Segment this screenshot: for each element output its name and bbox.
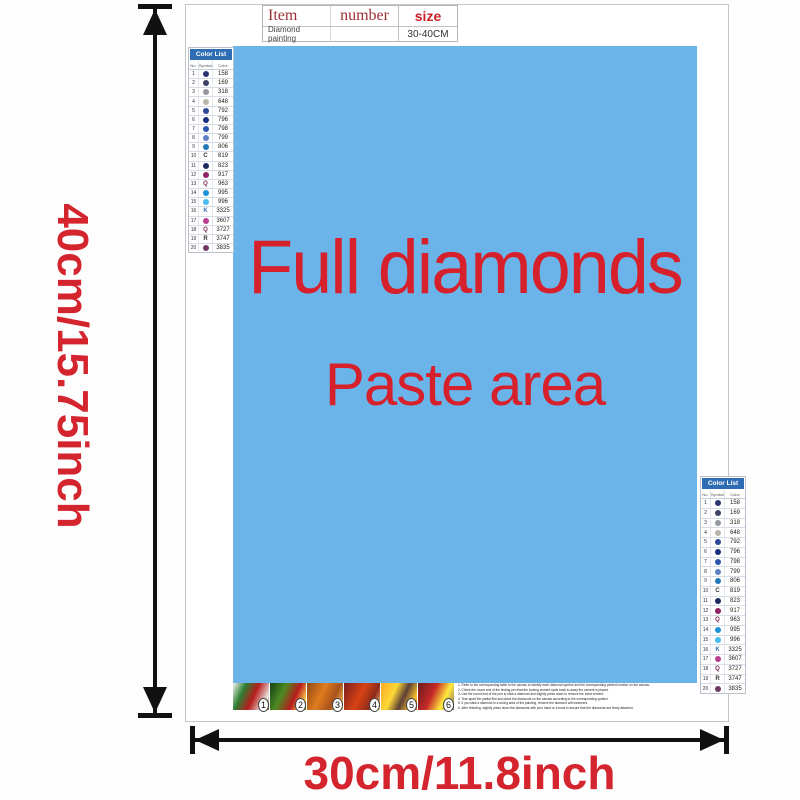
color-symbol [199, 116, 213, 124]
color-list-row: 12917 [701, 606, 745, 616]
color-symbol [711, 509, 725, 518]
color-list-row: 15996 [189, 198, 233, 207]
color-symbol-circle-icon [715, 686, 721, 692]
item-table-value-row: Diamond painting 30-40CM [263, 27, 457, 41]
color-symbol [711, 567, 725, 576]
dmc-code: 3607 [213, 217, 233, 225]
color-symbol-circle-icon [715, 608, 721, 614]
color-symbol-circle-icon [715, 500, 721, 506]
arrow-bottom-cap [138, 713, 172, 718]
color-symbol-circle-icon [715, 627, 721, 633]
color-list-row: 173607 [701, 655, 745, 665]
color-symbol-circle-icon [203, 245, 209, 251]
color-symbol-letter: C [715, 588, 719, 594]
dmc-code: 823 [213, 162, 233, 170]
color-list-row: 5792 [189, 107, 233, 116]
color-list-row: 3318 [701, 519, 745, 529]
color-symbol: R [711, 675, 725, 684]
color-symbol-circle-icon [715, 549, 721, 555]
color-list-title: Color List [190, 49, 232, 60]
color-symbol [199, 70, 213, 78]
product-image: 40cm/15.75inch Item number size Diamond … [0, 0, 800, 800]
color-list-column-header: Color [213, 61, 233, 69]
dmc-code: 318 [213, 88, 233, 96]
color-list-row: 14995 [189, 189, 233, 198]
color-symbol-circle-icon [715, 520, 721, 526]
step-number-badge: 5 [406, 698, 417, 712]
dmc-code: 648 [213, 97, 233, 105]
color-number: 7 [701, 558, 711, 567]
color-symbol-letter: Q [715, 617, 720, 623]
dmc-code: 3835 [213, 244, 233, 252]
color-symbol [199, 125, 213, 133]
color-symbol [711, 577, 725, 586]
color-list-row: 16K3325 [701, 645, 745, 655]
paste-area-title-line1: Full diamonds [240, 224, 690, 311]
dmc-code: 819 [213, 152, 233, 160]
dmc-code: 963 [725, 616, 745, 625]
color-symbol [711, 548, 725, 557]
color-number: 10 [189, 152, 199, 160]
color-list-row: 5792 [701, 538, 745, 548]
color-list-row: 11823 [701, 597, 745, 607]
color-list-row: 18Q3727 [189, 226, 233, 235]
dmc-code: 3727 [213, 226, 233, 234]
color-number: 18 [701, 665, 711, 674]
item-table-header-row: Item number size [263, 6, 457, 27]
color-list-row: 12917 [189, 171, 233, 180]
color-symbol-circle-icon [715, 578, 721, 584]
color-number: 5 [189, 107, 199, 115]
step-number-badge: 6 [443, 698, 454, 712]
color-list-row: 4648 [701, 528, 745, 538]
color-list-row: 10C819 [701, 587, 745, 597]
color-list-column-header: No. [701, 490, 711, 498]
dmc-code: 169 [213, 79, 233, 87]
color-symbol-circle-icon [715, 510, 721, 516]
dmc-code: 819 [725, 587, 745, 596]
color-symbol-letter: R [203, 236, 207, 242]
color-symbol-letter: K [715, 647, 719, 653]
color-list-header-row: No.SymbolColor [701, 490, 745, 499]
color-number: 9 [701, 577, 711, 586]
dmc-code: 318 [725, 519, 745, 528]
color-list-row: 13Q963 [701, 616, 745, 626]
dmc-code: 796 [213, 116, 233, 124]
color-list-row: 2169 [701, 509, 745, 519]
dmc-code: 3325 [725, 645, 745, 654]
paste-area: Full diamonds Paste area [233, 46, 697, 683]
color-symbol-circle-icon [203, 99, 209, 105]
color-list-row: 2169 [189, 79, 233, 88]
step-thumbnail: 5 [381, 683, 417, 710]
dmc-code: 3835 [725, 684, 745, 693]
step-number-badge: 3 [332, 698, 343, 712]
color-symbol [711, 597, 725, 606]
color-number: 11 [701, 597, 711, 606]
color-list-left: Color ListNo.SymbolColor1158216933184648… [188, 47, 234, 253]
dmc-code: 798 [213, 125, 233, 133]
color-symbol-letter: Q [715, 666, 720, 672]
step-thumbnail: 4 [344, 683, 380, 710]
color-symbol [711, 528, 725, 537]
color-number: 20 [701, 684, 711, 693]
color-symbol-circle-icon [203, 71, 209, 77]
color-symbol-letter: Q [203, 227, 208, 233]
color-list-row: 7798 [189, 125, 233, 134]
color-list-row: 14995 [701, 626, 745, 636]
color-symbol [199, 189, 213, 197]
arrow-vertical-line [153, 9, 157, 713]
color-number: 17 [701, 655, 711, 664]
step-number-badge: 1 [258, 698, 269, 712]
dmc-code: 806 [213, 143, 233, 151]
dmc-code: 806 [725, 577, 745, 586]
color-symbol [711, 606, 725, 615]
color-symbol [199, 134, 213, 142]
dmc-code: 996 [213, 198, 233, 206]
product-name-cell: Diamond painting [263, 27, 331, 41]
dmc-code: 3325 [213, 207, 233, 215]
color-symbol [711, 626, 725, 635]
color-symbol: Q [711, 616, 725, 625]
dmc-code: 823 [725, 597, 745, 606]
color-symbol-letter: C [203, 153, 207, 159]
color-symbol-circle-icon [203, 163, 209, 169]
dmc-code: 158 [213, 70, 233, 78]
dmc-code: 995 [213, 189, 233, 197]
color-list-row: 16K3325 [189, 207, 233, 216]
color-symbol [711, 519, 725, 528]
instruction-line: 6. After finishing, slightly press down … [458, 707, 700, 711]
color-symbol-letter: Q [203, 181, 208, 187]
color-symbol [199, 217, 213, 225]
step-thumbnail: 3 [307, 683, 343, 710]
color-symbol [199, 198, 213, 206]
color-symbol: C [199, 152, 213, 160]
color-list-row: 1158 [701, 499, 745, 509]
color-number: 2 [701, 509, 711, 518]
dmc-code: 917 [725, 606, 745, 615]
color-number: 16 [701, 645, 711, 654]
color-symbol-circle-icon [715, 539, 721, 545]
dmc-code: 917 [213, 171, 233, 179]
color-list-row: 6796 [189, 116, 233, 125]
item-header-cell: Item [263, 6, 331, 26]
color-number: 5 [701, 538, 711, 547]
color-symbol-circle-icon [715, 559, 721, 565]
color-number: 14 [701, 626, 711, 635]
color-list-right: Color ListNo.SymbolColor1158216933184648… [700, 476, 746, 694]
color-symbol-circle-icon [715, 598, 721, 604]
color-number: 4 [189, 97, 199, 105]
color-number: 14 [189, 189, 199, 197]
color-list-row: 1158 [189, 70, 233, 79]
dmc-code: 796 [725, 548, 745, 557]
color-list-row: 173607 [189, 217, 233, 226]
dmc-code: 798 [725, 558, 745, 567]
color-symbol [711, 499, 725, 508]
color-symbol [199, 79, 213, 87]
dmc-code: 996 [725, 636, 745, 645]
step-thumbnail: 2 [270, 683, 306, 710]
color-number: 15 [701, 636, 711, 645]
color-list-row: 6796 [701, 548, 745, 558]
color-number: 3 [701, 519, 711, 528]
color-symbol [711, 538, 725, 547]
dmc-code: 3607 [725, 655, 745, 664]
dmc-code: 792 [725, 538, 745, 547]
paste-area-title-line2: Paste area [233, 350, 697, 419]
color-symbol-circle-icon [203, 89, 209, 95]
color-list-row: 15996 [701, 636, 745, 646]
color-list-row: 18Q3727 [701, 665, 745, 675]
color-number: 7 [189, 125, 199, 133]
step-thumbnail: 1 [233, 683, 269, 710]
color-symbol-circle-icon [203, 218, 209, 224]
color-number: 8 [189, 134, 199, 142]
color-symbol: K [199, 207, 213, 215]
step-thumbnails: 123456 [233, 683, 454, 710]
color-number: 20 [189, 244, 199, 252]
canvas-poster: Item number size Diamond painting 30-40C… [185, 4, 729, 722]
dmc-code: 799 [213, 134, 233, 142]
size-value-cell: 30-40CM [399, 27, 457, 41]
color-list-row: 203835 [701, 684, 745, 693]
color-list-row: 13Q963 [189, 180, 233, 189]
color-list-row: 8799 [701, 567, 745, 577]
color-number: 19 [701, 675, 711, 684]
color-symbol [199, 143, 213, 151]
width-dimension-label: 30cm/11.8inch [190, 746, 729, 800]
color-symbol-circle-icon [203, 80, 209, 86]
arrow-down-head-icon [143, 687, 167, 713]
number-header-cell: number [331, 6, 399, 26]
color-number: 2 [189, 79, 199, 87]
dmc-code: 169 [725, 509, 745, 518]
color-symbol [199, 107, 213, 115]
color-symbol-circle-icon [715, 530, 721, 536]
color-symbol [711, 636, 725, 645]
color-list-row: 9806 [189, 143, 233, 152]
color-symbol-circle-icon [203, 190, 209, 196]
color-symbol-circle-icon [715, 569, 721, 575]
color-number: 13 [701, 616, 711, 625]
color-list-column-header: Color [725, 490, 745, 498]
color-symbol-letter: R [715, 676, 719, 682]
color-list-row: 3318 [189, 88, 233, 97]
color-number: 13 [189, 180, 199, 188]
step-thumbnail: 6 [418, 683, 454, 710]
color-number: 19 [189, 235, 199, 243]
color-symbol [199, 88, 213, 96]
color-list-column-header: Symbol [711, 490, 725, 498]
color-symbol: Q [199, 226, 213, 234]
color-list-header-row: No.SymbolColor [189, 61, 233, 70]
color-list-row: 8799 [189, 134, 233, 143]
dmc-code: 995 [725, 626, 745, 635]
color-number: 1 [189, 70, 199, 78]
color-symbol [711, 684, 725, 693]
color-symbol: Q [711, 665, 725, 674]
color-number: 6 [701, 548, 711, 557]
color-list-row: 7798 [701, 558, 745, 568]
color-list-row: 10C819 [189, 152, 233, 161]
dmc-code: 648 [725, 528, 745, 537]
color-symbol [711, 655, 725, 664]
color-symbol-circle-icon [203, 172, 209, 178]
color-symbol [199, 244, 213, 252]
color-symbol: Q [199, 180, 213, 188]
color-number: 8 [701, 567, 711, 576]
dmc-code: 963 [213, 180, 233, 188]
color-list-row: 4648 [189, 97, 233, 106]
step-number-badge: 4 [369, 698, 380, 712]
color-symbol-circle-icon [203, 144, 209, 150]
color-number: 1 [701, 499, 711, 508]
color-symbol-circle-icon [715, 656, 721, 662]
color-number: 12 [189, 171, 199, 179]
dmc-code: 3727 [725, 665, 745, 674]
color-number: 3 [189, 88, 199, 96]
color-list-row: 9806 [701, 577, 745, 587]
color-list-row: 203835 [189, 244, 233, 252]
color-number: 4 [701, 528, 711, 537]
color-number: 15 [189, 198, 199, 206]
step-number-badge: 2 [295, 698, 306, 712]
color-number: 10 [701, 587, 711, 596]
color-symbol-letter: K [203, 208, 207, 214]
dmc-code: 3747 [725, 675, 745, 684]
color-symbol: K [711, 645, 725, 654]
color-number: 11 [189, 162, 199, 170]
color-list-title: Color List [702, 478, 744, 489]
instruction-text: 1. Refer to the corresponding table to t… [458, 684, 700, 712]
color-number: 9 [189, 143, 199, 151]
color-number: 16 [189, 207, 199, 215]
dmc-code: 792 [213, 107, 233, 115]
color-symbol-circle-icon [203, 199, 209, 205]
color-number: 17 [189, 217, 199, 225]
color-symbol-circle-icon [203, 135, 209, 141]
color-list-row: 19R3747 [701, 675, 745, 685]
height-dimension-arrow [138, 4, 172, 718]
color-symbol [199, 171, 213, 179]
dmc-code: 799 [725, 567, 745, 576]
dmc-code: 3747 [213, 235, 233, 243]
color-list-column-header: Symbol [199, 61, 213, 69]
color-symbol-circle-icon [203, 117, 209, 123]
color-list-row: 19R3747 [189, 235, 233, 244]
item-table: Item number size Diamond painting 30-40C… [262, 5, 458, 42]
dmc-code: 158 [725, 499, 745, 508]
color-symbol-circle-icon [203, 126, 209, 132]
size-header-cell: size [399, 6, 457, 26]
color-symbol [711, 558, 725, 567]
color-list-column-header: No. [189, 61, 199, 69]
color-number: 18 [189, 226, 199, 234]
color-symbol [199, 162, 213, 170]
color-number: 6 [189, 116, 199, 124]
color-symbol-circle-icon [715, 637, 721, 643]
color-list-row: 11823 [189, 162, 233, 171]
color-symbol [199, 97, 213, 105]
height-dimension-label: 40cm/15.75inch [47, 201, 97, 531]
number-value-cell [331, 27, 399, 41]
color-symbol: R [199, 235, 213, 243]
color-symbol-circle-icon [203, 108, 209, 114]
color-number: 12 [701, 606, 711, 615]
arrow-horizontal-line [195, 738, 724, 742]
color-symbol: C [711, 587, 725, 596]
